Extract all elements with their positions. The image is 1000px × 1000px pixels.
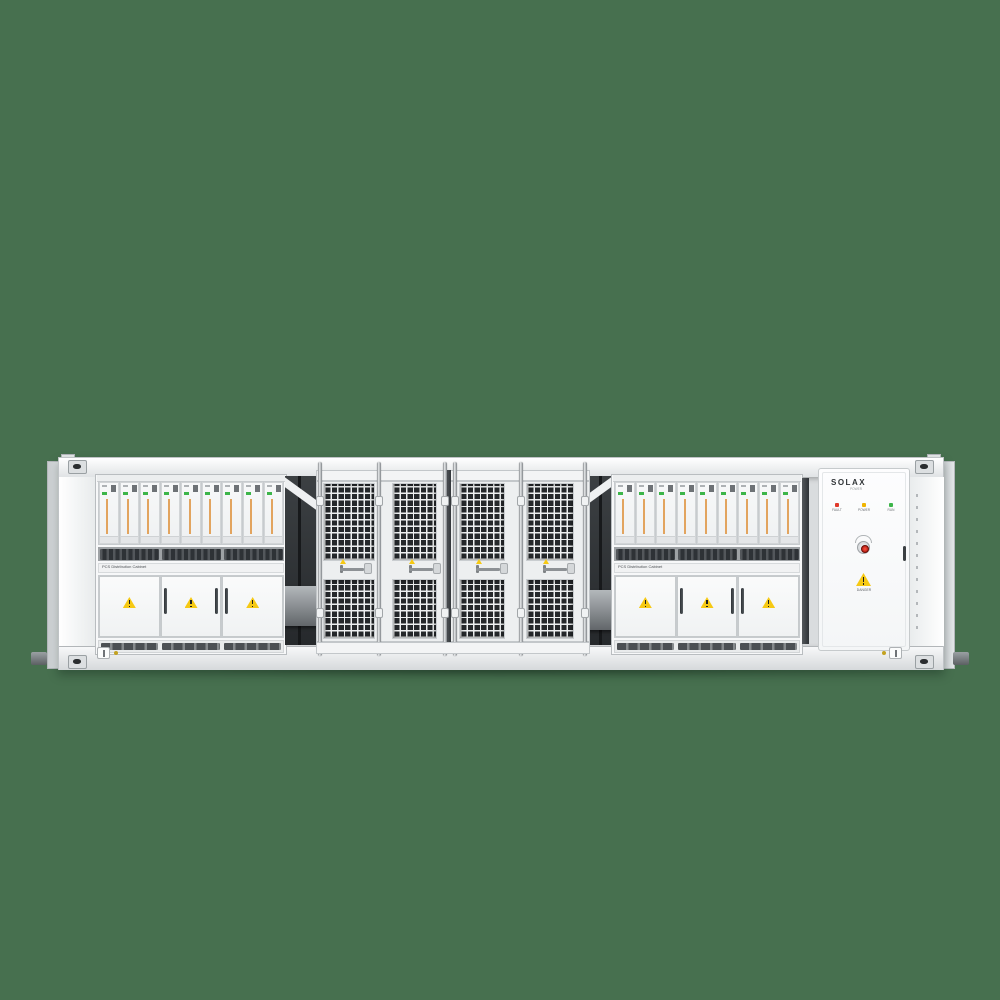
pcs-module	[718, 482, 738, 544]
warning-triangle-icon	[762, 597, 775, 608]
warning-sticker-icon	[543, 559, 549, 564]
vent-grille	[740, 549, 799, 560]
led-fault-label: FAULT	[832, 508, 842, 512]
rack-door	[161, 576, 222, 637]
vent-grille	[678, 549, 737, 560]
warning-sticker-icon	[476, 559, 482, 564]
rack-door	[99, 576, 160, 637]
rack-bottom-vent	[98, 640, 284, 653]
module-led	[123, 492, 128, 495]
module-foot	[657, 536, 675, 543]
pcs-module	[243, 482, 263, 544]
module-vent	[771, 485, 776, 492]
rack-bottom-vent	[614, 640, 800, 653]
brace-gap-left	[285, 476, 316, 645]
cabinet-door-outline	[822, 472, 906, 647]
module-vent	[648, 485, 653, 492]
module-led	[680, 492, 685, 495]
module-led	[102, 492, 107, 495]
mesh-panel-upper-4	[526, 483, 574, 561]
bottom-right-foot	[953, 652, 969, 665]
module-foot	[637, 536, 655, 543]
door-handle	[164, 588, 167, 614]
module-stripe	[725, 499, 727, 534]
lock-rod	[318, 462, 322, 656]
pcs-module	[677, 482, 697, 544]
module-vent	[792, 485, 797, 492]
module-label	[246, 485, 251, 487]
module-label	[267, 485, 272, 487]
module-foot	[244, 536, 262, 543]
module-led	[246, 492, 251, 495]
pcs-module	[780, 482, 800, 544]
rack-door	[677, 576, 738, 637]
module-led	[164, 492, 169, 495]
pcs-module	[140, 482, 160, 544]
led-run: RUN	[881, 503, 901, 517]
module-stripe	[168, 499, 170, 534]
module-stripe	[643, 499, 645, 534]
module-vent	[193, 485, 198, 492]
module-stripe	[230, 499, 232, 534]
rack-door	[615, 576, 676, 637]
led-fault-icon	[835, 503, 840, 507]
vent-grille	[867, 631, 902, 639]
vent-grille	[224, 549, 283, 560]
warning-triangle-icon	[185, 597, 198, 608]
emergency-stop-button	[857, 541, 870, 554]
pcs-rack-right: PCS Distribution Cabinet	[611, 474, 803, 655]
module-vent	[750, 485, 755, 492]
led-power-icon	[862, 503, 867, 507]
module-vent	[214, 485, 219, 492]
pcs-module	[697, 482, 717, 544]
vent-grille	[100, 549, 159, 560]
vent-grille	[162, 643, 219, 650]
pcs-module	[264, 482, 284, 544]
module-foot	[223, 536, 241, 543]
lock-rod	[583, 462, 587, 656]
container-right-post	[907, 477, 944, 646]
rack-label: PCS Distribution Cabinet	[618, 565, 662, 569]
module-stripe	[189, 499, 191, 534]
cable-duct	[590, 590, 611, 630]
latch-slot-icon	[103, 650, 105, 657]
module-stripe	[663, 499, 665, 534]
cage-door-handle	[340, 559, 376, 579]
module-vent	[668, 485, 673, 492]
corner-casting-top-left	[68, 460, 87, 474]
door-handle	[225, 588, 228, 614]
warning-sticker-icon	[340, 559, 346, 564]
module-led	[184, 492, 189, 495]
door-hinge-column	[916, 494, 918, 638]
cage-section	[316, 462, 590, 656]
module-label	[618, 485, 623, 487]
warning-sticker-icon	[409, 559, 415, 564]
module-label	[659, 485, 664, 487]
pcs-module	[656, 482, 676, 544]
brand-logo-sub: POWER	[850, 487, 862, 491]
module-vent	[234, 485, 239, 492]
module-led	[639, 492, 644, 495]
warning-triangle-icon	[246, 597, 259, 608]
door-handle	[741, 588, 744, 614]
module-stripe	[271, 499, 273, 534]
brand-logo: SOLAX	[831, 478, 866, 487]
module-vent	[173, 485, 178, 492]
corner-casting-bottom-right	[915, 655, 934, 669]
module-vent	[627, 485, 632, 492]
casting-hole-icon	[73, 464, 81, 469]
cabinet-handle	[903, 546, 906, 561]
latch-slot-icon	[895, 650, 897, 657]
mesh-panel-upper-2	[392, 483, 437, 561]
module-label	[700, 485, 705, 487]
module-led	[659, 492, 664, 495]
vent-grille	[616, 549, 675, 560]
module-stripe	[622, 499, 624, 534]
door-handle	[680, 588, 683, 614]
cage-footer	[316, 642, 590, 654]
module-label	[205, 485, 210, 487]
vent-grille	[162, 549, 221, 560]
module-vent	[111, 485, 116, 492]
panel-gap-shadow	[802, 478, 809, 644]
container-left-post	[59, 477, 96, 646]
mesh-panel-lower-3	[459, 579, 505, 639]
module-led	[267, 492, 272, 495]
module-led	[225, 492, 230, 495]
rack-door-row	[98, 575, 284, 638]
module-label	[123, 485, 128, 487]
module-label	[741, 485, 746, 487]
warning-triangle-icon	[123, 597, 136, 608]
mesh-panel-lower-1	[323, 579, 375, 639]
rack-label-strip: PCS Distribution Cabinet	[614, 563, 800, 573]
module-label	[102, 485, 107, 487]
module-foot	[203, 536, 221, 543]
module-foot	[265, 536, 283, 543]
module-label	[184, 485, 189, 487]
module-stripe	[684, 499, 686, 534]
module-foot	[719, 536, 737, 543]
twist-lock-right	[889, 647, 902, 659]
indicator-dot-right	[882, 651, 886, 655]
vent-grille	[224, 643, 281, 650]
led-power: POWER	[854, 503, 874, 517]
lock-rod	[519, 462, 523, 656]
module-foot	[162, 536, 180, 543]
pcs-module	[738, 482, 758, 544]
corner-casting-bottom-left	[68, 655, 87, 669]
solax-cabinet: SOLAX POWER FAULT POWER RUN DANGER	[818, 468, 910, 651]
cabinet-vent-row	[826, 631, 902, 640]
rack-label-strip: PCS Distribution Cabinet	[98, 563, 284, 573]
module-vent	[730, 485, 735, 492]
cage-door-handle	[476, 559, 512, 579]
led-indicator-row: FAULT POWER RUN	[827, 503, 901, 517]
module-foot	[781, 536, 799, 543]
vent-grille	[740, 643, 797, 650]
pcs-module	[615, 482, 635, 544]
door-handle	[215, 588, 218, 614]
module-stripe	[106, 499, 108, 534]
casting-hole-icon	[73, 659, 81, 664]
module-vent	[152, 485, 157, 492]
brace-gap-right	[590, 476, 611, 645]
module-foot	[121, 536, 139, 543]
rack-vent-strip	[98, 547, 284, 561]
module-led	[700, 492, 705, 495]
pcs-module	[181, 482, 201, 544]
rack-door	[222, 576, 283, 637]
pcs-module	[120, 482, 140, 544]
pcs-module	[99, 482, 119, 544]
rack-door-row	[614, 575, 800, 638]
module-vent	[132, 485, 137, 492]
bottom-left-foot	[31, 652, 47, 665]
module-label	[721, 485, 726, 487]
mesh-panel-upper-1	[323, 483, 375, 561]
module-led	[783, 492, 788, 495]
twist-lock-left	[97, 647, 110, 659]
door-handle	[731, 588, 734, 614]
module-foot	[182, 536, 200, 543]
pcs-module	[759, 482, 779, 544]
pcs-module	[222, 482, 242, 544]
mesh-panel-upper-3	[459, 483, 505, 561]
module-foot	[616, 536, 634, 543]
vent-grille	[617, 643, 674, 650]
module-vent	[276, 485, 281, 492]
module-vent	[255, 485, 260, 492]
module-label	[639, 485, 644, 487]
module-stripe	[746, 499, 748, 534]
module-vent	[689, 485, 694, 492]
warning-label: DANGER	[857, 588, 871, 592]
led-run-label: RUN	[888, 508, 895, 512]
module-label	[783, 485, 788, 487]
casting-hole-icon	[920, 464, 928, 469]
estop-red-core-icon	[861, 545, 869, 553]
cage-door-handle	[543, 559, 579, 579]
module-led	[721, 492, 726, 495]
module-foot	[698, 536, 716, 543]
module-foot	[760, 536, 778, 543]
cable-duct	[285, 586, 316, 626]
module-label	[143, 485, 148, 487]
module-label	[225, 485, 230, 487]
vent-grille	[678, 643, 735, 650]
warning-triangle-icon	[701, 597, 714, 608]
module-stripe	[209, 499, 211, 534]
module-foot	[739, 536, 757, 543]
rack-label: PCS Distribution Cabinet	[102, 565, 146, 569]
scene: PCS Distribution Cabinet	[0, 0, 1000, 1000]
pcs-module	[636, 482, 656, 544]
module-stripe	[787, 499, 789, 534]
casting-hole-icon	[920, 659, 928, 664]
rack-door	[738, 576, 799, 637]
module-label	[164, 485, 169, 487]
module-led	[741, 492, 746, 495]
mesh-panel-lower-2	[392, 579, 437, 639]
module-foot	[678, 536, 696, 543]
pcs-module	[202, 482, 222, 544]
lock-rod	[443, 462, 447, 656]
indicator-dot-left	[114, 651, 118, 655]
lock-rod	[453, 462, 457, 656]
module-led	[762, 492, 767, 495]
vent-grille	[826, 631, 861, 639]
module-vent	[709, 485, 714, 492]
pcs-module-row	[614, 481, 800, 545]
pcs-rack-left: PCS Distribution Cabinet	[95, 474, 287, 655]
led-fault: FAULT	[827, 503, 847, 517]
led-power-label: POWER	[858, 508, 870, 512]
module-stripe	[147, 499, 149, 534]
cage-door-handle	[409, 559, 445, 579]
warning-triangle-icon	[639, 597, 652, 608]
mesh-panel-lower-4	[526, 579, 574, 639]
module-led	[618, 492, 623, 495]
module-stripe	[127, 499, 129, 534]
module-led	[143, 492, 148, 495]
rack-vent-strip	[614, 547, 800, 561]
led-run-icon	[889, 503, 894, 507]
corner-casting-top-right	[915, 460, 934, 474]
module-foot	[100, 536, 118, 543]
module-stripe	[766, 499, 768, 534]
pcs-module-row	[98, 481, 284, 545]
pcs-module	[161, 482, 181, 544]
module-stripe	[705, 499, 707, 534]
module-stripe	[250, 499, 252, 534]
module-label	[762, 485, 767, 487]
lock-rod	[377, 462, 381, 656]
module-label	[680, 485, 685, 487]
module-led	[205, 492, 210, 495]
module-foot	[141, 536, 159, 543]
